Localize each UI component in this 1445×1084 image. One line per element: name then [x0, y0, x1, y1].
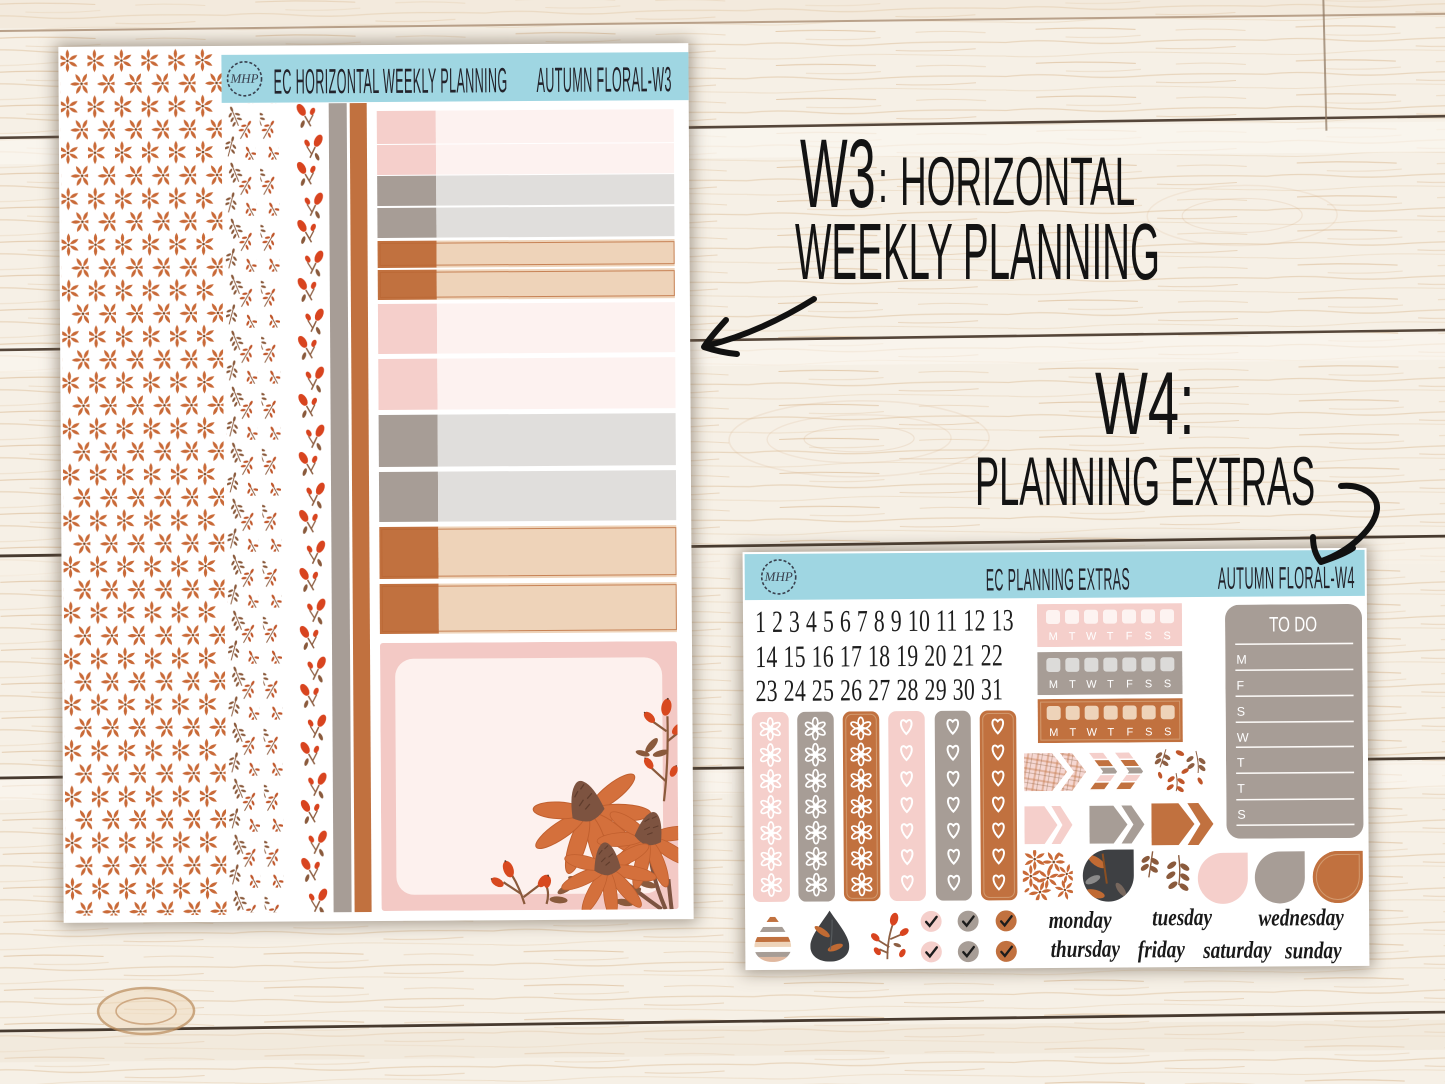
svg-text:S: S	[1164, 678, 1171, 690]
svg-text:S: S	[1144, 630, 1151, 642]
svg-text:T: T	[1107, 679, 1114, 691]
svg-text:F: F	[1236, 679, 1244, 693]
svg-text:M: M	[1049, 631, 1058, 643]
svg-text:TO DO: TO DO	[1269, 613, 1317, 636]
svg-text:T: T	[1237, 782, 1245, 796]
svg-text:MHP: MHP	[229, 71, 258, 86]
svg-text:W: W	[1086, 631, 1097, 643]
svg-text:F: F	[1126, 726, 1133, 738]
svg-text:T: T	[1107, 727, 1114, 739]
svg-text:S: S	[1164, 726, 1171, 738]
svg-text:M: M	[1049, 727, 1058, 739]
svg-text:S: S	[1237, 705, 1245, 719]
svg-text:W: W	[1087, 727, 1098, 739]
svg-text:W: W	[1086, 679, 1097, 691]
svg-text:T: T	[1069, 727, 1076, 739]
svg-text:M: M	[1049, 679, 1058, 691]
svg-text:T: T	[1237, 756, 1245, 770]
svg-text:S: S	[1163, 630, 1170, 642]
svg-text:S: S	[1145, 726, 1152, 738]
svg-text:T: T	[1069, 679, 1076, 691]
svg-text:W: W	[1237, 731, 1249, 745]
svg-text:S: S	[1237, 808, 1245, 822]
svg-text:M: M	[1236, 653, 1247, 667]
svg-text:T: T	[1107, 631, 1114, 643]
svg-text:S: S	[1145, 678, 1152, 690]
svg-text:F: F	[1126, 678, 1133, 690]
svg-text:F: F	[1126, 630, 1133, 642]
svg-text:MHP: MHP	[764, 569, 793, 584]
svg-text:T: T	[1069, 631, 1076, 643]
